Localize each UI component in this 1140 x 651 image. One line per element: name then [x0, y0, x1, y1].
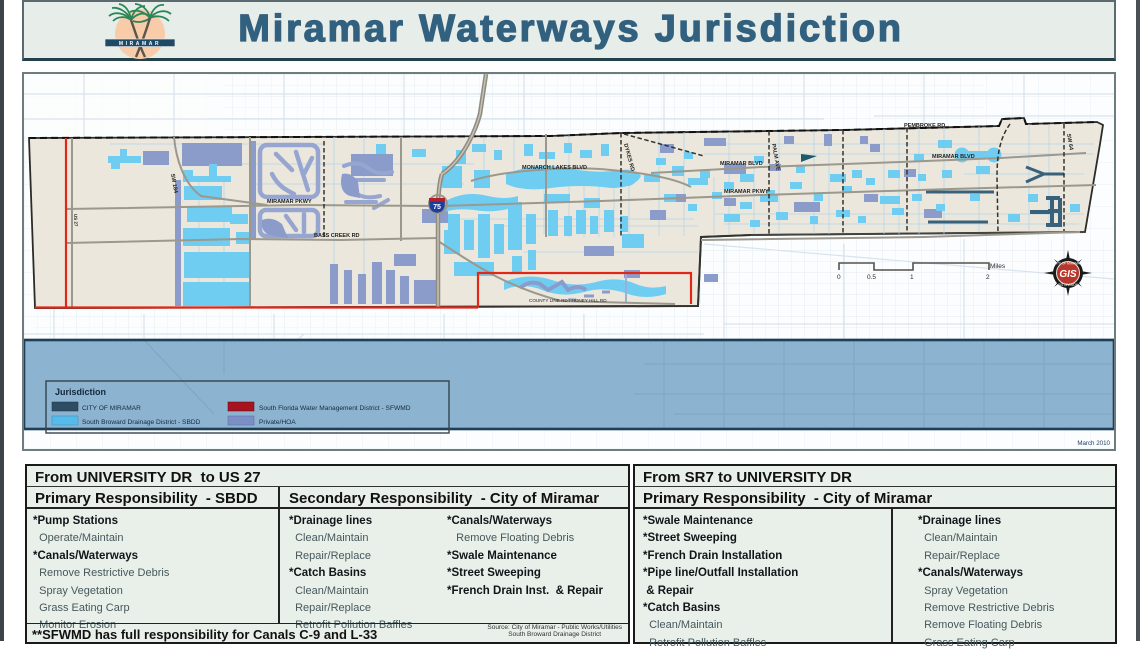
svg-text:March 2010: March 2010	[1077, 440, 1110, 447]
svg-text:MIRAMAR: MIRAMAR	[119, 41, 161, 47]
svg-text:Miles: Miles	[990, 263, 1006, 270]
svg-text:US 27: US 27	[73, 214, 79, 227]
svg-text:MONARCH LAKES BLVD: MONARCH LAKES BLVD	[522, 165, 587, 171]
svg-text:CITY OF MIRAMAR: CITY OF MIRAMAR	[1054, 262, 1083, 266]
svg-text:MIRAMAR BLVD: MIRAMAR BLVD	[720, 161, 763, 167]
svg-text:South Florida Water Management: South Florida Water Management District …	[259, 405, 411, 412]
svg-text:GIS: GIS	[1059, 269, 1077, 280]
svg-text:South Broward Drainage Distric: South Broward Drainage District - SBDD	[82, 419, 201, 426]
svg-text:CITY OF MIRAMAR: CITY OF MIRAMAR	[82, 405, 141, 412]
svg-text:PEMBROKE RD: PEMBROKE RD	[904, 123, 945, 129]
svg-text:MIRAMAR PKWY: MIRAMAR PKWY	[724, 189, 769, 195]
svg-text:75: 75	[433, 204, 441, 211]
svg-text:0: 0	[837, 274, 841, 281]
svg-text:BASS CREEK RD: BASS CREEK RD	[314, 233, 360, 239]
svg-text:GIS DIVISION: GIS DIVISION	[1058, 283, 1079, 287]
svg-text:Private/HOA: Private/HOA	[259, 419, 296, 426]
svg-text:MIRAMAR PKWY: MIRAMAR PKWY	[267, 199, 312, 205]
svg-text:2: 2	[986, 274, 990, 281]
svg-text:MIRAMAR BLVD: MIRAMAR BLVD	[932, 154, 975, 160]
svg-text:1: 1	[910, 274, 914, 281]
svg-text:Jurisdiction: Jurisdiction	[55, 387, 106, 397]
svg-text:0.5: 0.5	[867, 274, 876, 281]
svg-text:COUNTY LINE RD / HONEY HILL RD: COUNTY LINE RD / HONEY HILL RD	[529, 298, 607, 303]
